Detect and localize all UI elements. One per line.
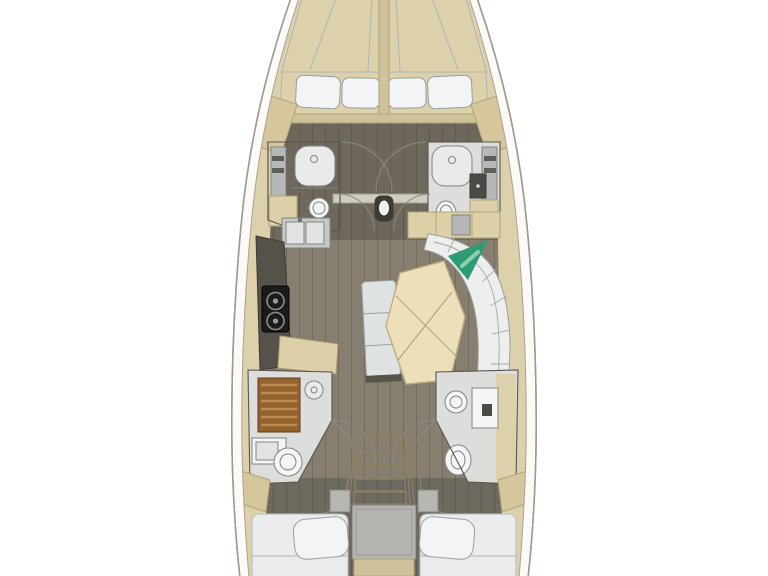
shower-tray [432,146,472,186]
engine-compartment [352,505,416,559]
faucet-fitting [482,404,492,416]
burner-center [273,318,278,323]
cabinet-slat [272,156,284,161]
cabinet-slat [272,168,284,173]
mast-post [375,196,393,221]
interior [230,0,540,576]
hull-side-counter [496,374,516,480]
vberth-foot-frame [276,114,492,123]
sink [445,391,467,413]
nightstand [418,490,438,512]
toilet [274,448,302,476]
engine-step-trim [354,559,414,576]
locker-knob [476,184,480,188]
pillow [388,78,427,109]
pillow [292,516,349,561]
mast-section [379,201,389,216]
cabinet-slat [484,168,496,173]
faucet [298,218,302,222]
salon-sideboard [408,212,500,238]
sideboard-inset [452,215,470,235]
shower-tray [295,146,335,186]
burner-center [273,298,278,303]
yacht-floor-plan [0,0,768,576]
pillow [295,75,341,109]
sink-basin [286,222,304,244]
toilet [445,445,471,475]
pillow [427,75,473,109]
toilet [309,198,329,218]
nightstand [330,490,350,512]
pillow [418,516,475,561]
pillow [342,78,381,109]
vberth-center-divider [379,0,389,116]
sink-basin [306,222,324,244]
cabinet-slat [484,156,496,161]
shower-head [305,381,323,399]
